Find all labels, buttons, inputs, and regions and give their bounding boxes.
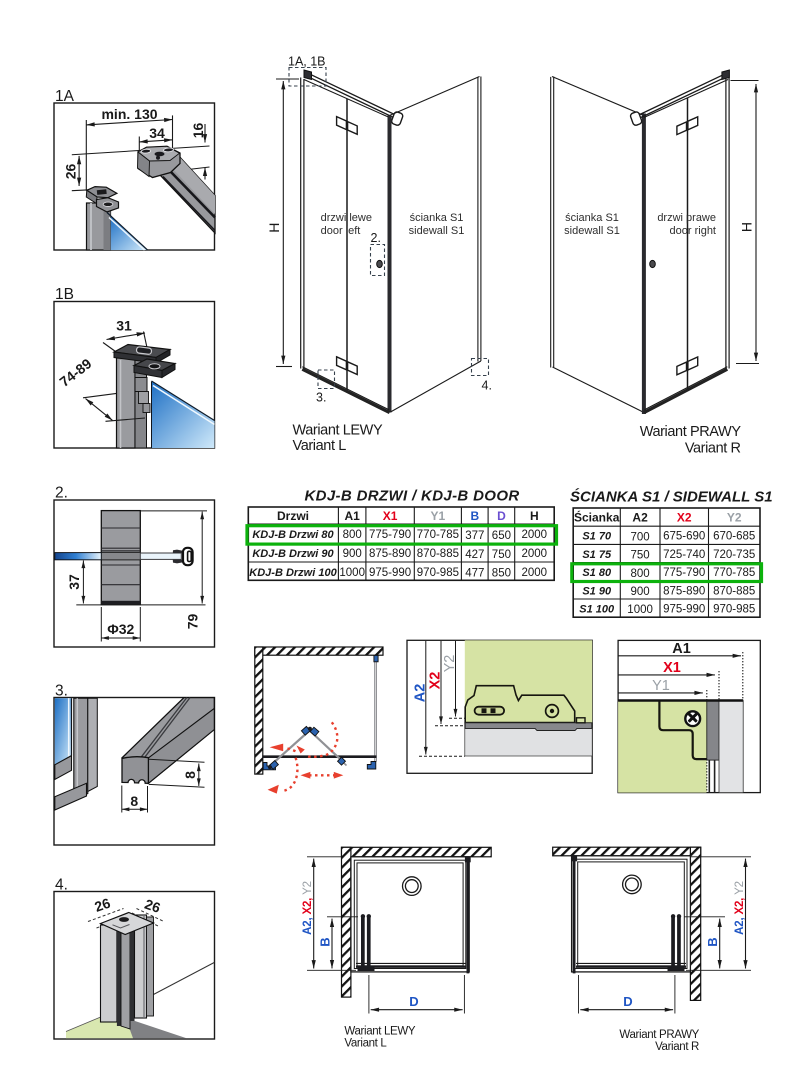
svg-text:door right: door right <box>670 225 716 237</box>
svg-text:drzwi lewe: drzwi lewe <box>321 212 372 224</box>
svg-text:S1 100: S1 100 <box>579 604 615 616</box>
svg-text:1000: 1000 <box>339 567 365 579</box>
svg-text:770-785: 770-785 <box>713 567 755 579</box>
svg-text:900: 900 <box>631 586 650 598</box>
svg-text:970-985: 970-985 <box>713 604 755 616</box>
svg-text:B: B <box>470 509 479 523</box>
svg-text:door left: door left <box>321 225 361 237</box>
svg-text:725-740: 725-740 <box>663 549 705 561</box>
svg-text:850: 850 <box>492 568 511 580</box>
svg-text:875-890: 875-890 <box>369 548 411 560</box>
svg-text:16: 16 <box>190 123 206 139</box>
svg-text:D: D <box>409 994 418 1009</box>
svg-text:427: 427 <box>465 549 484 561</box>
svg-text:X1: X1 <box>383 509 398 523</box>
svg-text:Variant R: Variant R <box>685 441 741 457</box>
svg-text:B: B <box>318 937 333 946</box>
svg-text:ścianka S1: ścianka S1 <box>410 212 464 224</box>
svg-text:A2, X2, Y2: A2, X2, Y2 <box>302 881 314 935</box>
svg-text:675-690: 675-690 <box>663 531 705 543</box>
svg-text:KDJ-B DRZWI / KDJ-B DOOR: KDJ-B DRZWI / KDJ-B DOOR <box>304 488 519 505</box>
svg-text:670-685: 670-685 <box>713 531 755 543</box>
svg-text:720-735: 720-735 <box>713 549 755 561</box>
svg-text:drzwi prawe: drzwi prawe <box>657 212 716 224</box>
svg-text:1B: 1B <box>55 286 74 303</box>
svg-text:Ścianka: Ścianka <box>574 510 620 525</box>
svg-text:Wariant PRAWY: Wariant PRAWY <box>619 1029 699 1041</box>
svg-text:X2: X2 <box>428 672 444 690</box>
svg-text:Y1: Y1 <box>652 678 670 694</box>
svg-text:775-790: 775-790 <box>663 567 705 579</box>
svg-text:26: 26 <box>63 164 79 180</box>
svg-text:870-885: 870-885 <box>417 548 459 560</box>
svg-text:S1 70: S1 70 <box>582 531 612 543</box>
svg-text:8: 8 <box>182 771 198 779</box>
svg-text:2000: 2000 <box>522 548 548 560</box>
svg-text:377: 377 <box>465 530 484 542</box>
svg-text:775-790: 775-790 <box>369 529 411 541</box>
svg-text:2000: 2000 <box>522 529 548 541</box>
svg-text:34: 34 <box>149 125 165 141</box>
svg-text:A1: A1 <box>672 641 691 657</box>
svg-text:A2: A2 <box>632 511 648 525</box>
svg-text:1000: 1000 <box>627 604 653 616</box>
svg-text:650: 650 <box>492 530 511 542</box>
svg-text:KDJ-B Drzwi 90: KDJ-B Drzwi 90 <box>252 548 334 560</box>
svg-text:Variant R: Variant R <box>655 1041 699 1053</box>
svg-text:sidewall S1: sidewall S1 <box>409 225 465 237</box>
svg-text:750: 750 <box>492 549 511 561</box>
svg-text:875-890: 875-890 <box>663 585 705 597</box>
svg-text:A1: A1 <box>345 509 361 523</box>
svg-text:X2: X2 <box>677 511 692 525</box>
svg-text:D: D <box>497 509 506 523</box>
svg-text:2.: 2. <box>371 231 381 245</box>
svg-text:min. 130: min. 130 <box>101 106 157 122</box>
svg-text:KDJ-B Drzwi 100: KDJ-B Drzwi 100 <box>249 567 337 579</box>
svg-text:770-785: 770-785 <box>417 529 459 541</box>
svg-text:870-885: 870-885 <box>713 585 755 597</box>
svg-text:D: D <box>623 994 632 1009</box>
svg-text:S1 80: S1 80 <box>582 567 612 579</box>
svg-text:Y2: Y2 <box>442 655 458 673</box>
svg-text:800: 800 <box>343 529 362 541</box>
svg-text:750: 750 <box>631 550 650 562</box>
svg-text:ścianka S1: ścianka S1 <box>565 212 619 224</box>
svg-text:KDJ-B Drzwi 80: KDJ-B Drzwi 80 <box>252 529 334 541</box>
svg-text:X1: X1 <box>663 660 681 676</box>
svg-text:37: 37 <box>66 574 82 590</box>
svg-text:B: B <box>705 937 720 946</box>
svg-text:477: 477 <box>465 568 484 580</box>
svg-text:970-985: 970-985 <box>417 567 459 579</box>
svg-text:Wariant LEWY: Wariant LEWY <box>344 1026 415 1038</box>
svg-text:2.: 2. <box>55 485 68 502</box>
svg-text:Y1: Y1 <box>431 509 446 523</box>
svg-text:Variant L: Variant L <box>293 438 347 454</box>
svg-text:1A, 1B: 1A, 1B <box>288 55 326 69</box>
svg-text:975-990: 975-990 <box>663 604 705 616</box>
svg-text:Wariant LEWY: Wariant LEWY <box>293 423 383 439</box>
svg-text:H: H <box>530 509 539 523</box>
svg-text:sidewall S1: sidewall S1 <box>564 225 620 237</box>
svg-text:975-990: 975-990 <box>369 567 411 579</box>
svg-text:Y2: Y2 <box>727 511 742 525</box>
svg-text:800: 800 <box>631 568 650 580</box>
svg-text:31: 31 <box>116 318 132 334</box>
svg-text:ŚCIANKA S1 / SIDEWALL S1: ŚCIANKA S1 / SIDEWALL S1 <box>570 488 773 506</box>
svg-text:H: H <box>739 222 755 232</box>
svg-text:4.: 4. <box>482 379 492 393</box>
svg-text:A2, X2, Y2: A2, X2, Y2 <box>734 881 746 935</box>
svg-text:900: 900 <box>343 548 362 560</box>
svg-text:H: H <box>266 223 282 233</box>
svg-text:Φ32: Φ32 <box>107 621 134 637</box>
svg-text:8: 8 <box>130 793 138 809</box>
svg-text:3.: 3. <box>316 391 326 405</box>
svg-text:Variant L: Variant L <box>344 1038 387 1050</box>
svg-text:S1 90: S1 90 <box>582 585 612 597</box>
svg-text:Drzwi: Drzwi <box>277 509 309 523</box>
svg-text:700: 700 <box>631 531 650 543</box>
svg-text:Wariant PRAWY: Wariant PRAWY <box>640 424 742 440</box>
svg-text:S1 75: S1 75 <box>582 549 612 561</box>
svg-text:79: 79 <box>185 614 201 630</box>
svg-text:2000: 2000 <box>522 567 548 579</box>
svg-text:A2: A2 <box>413 684 429 703</box>
